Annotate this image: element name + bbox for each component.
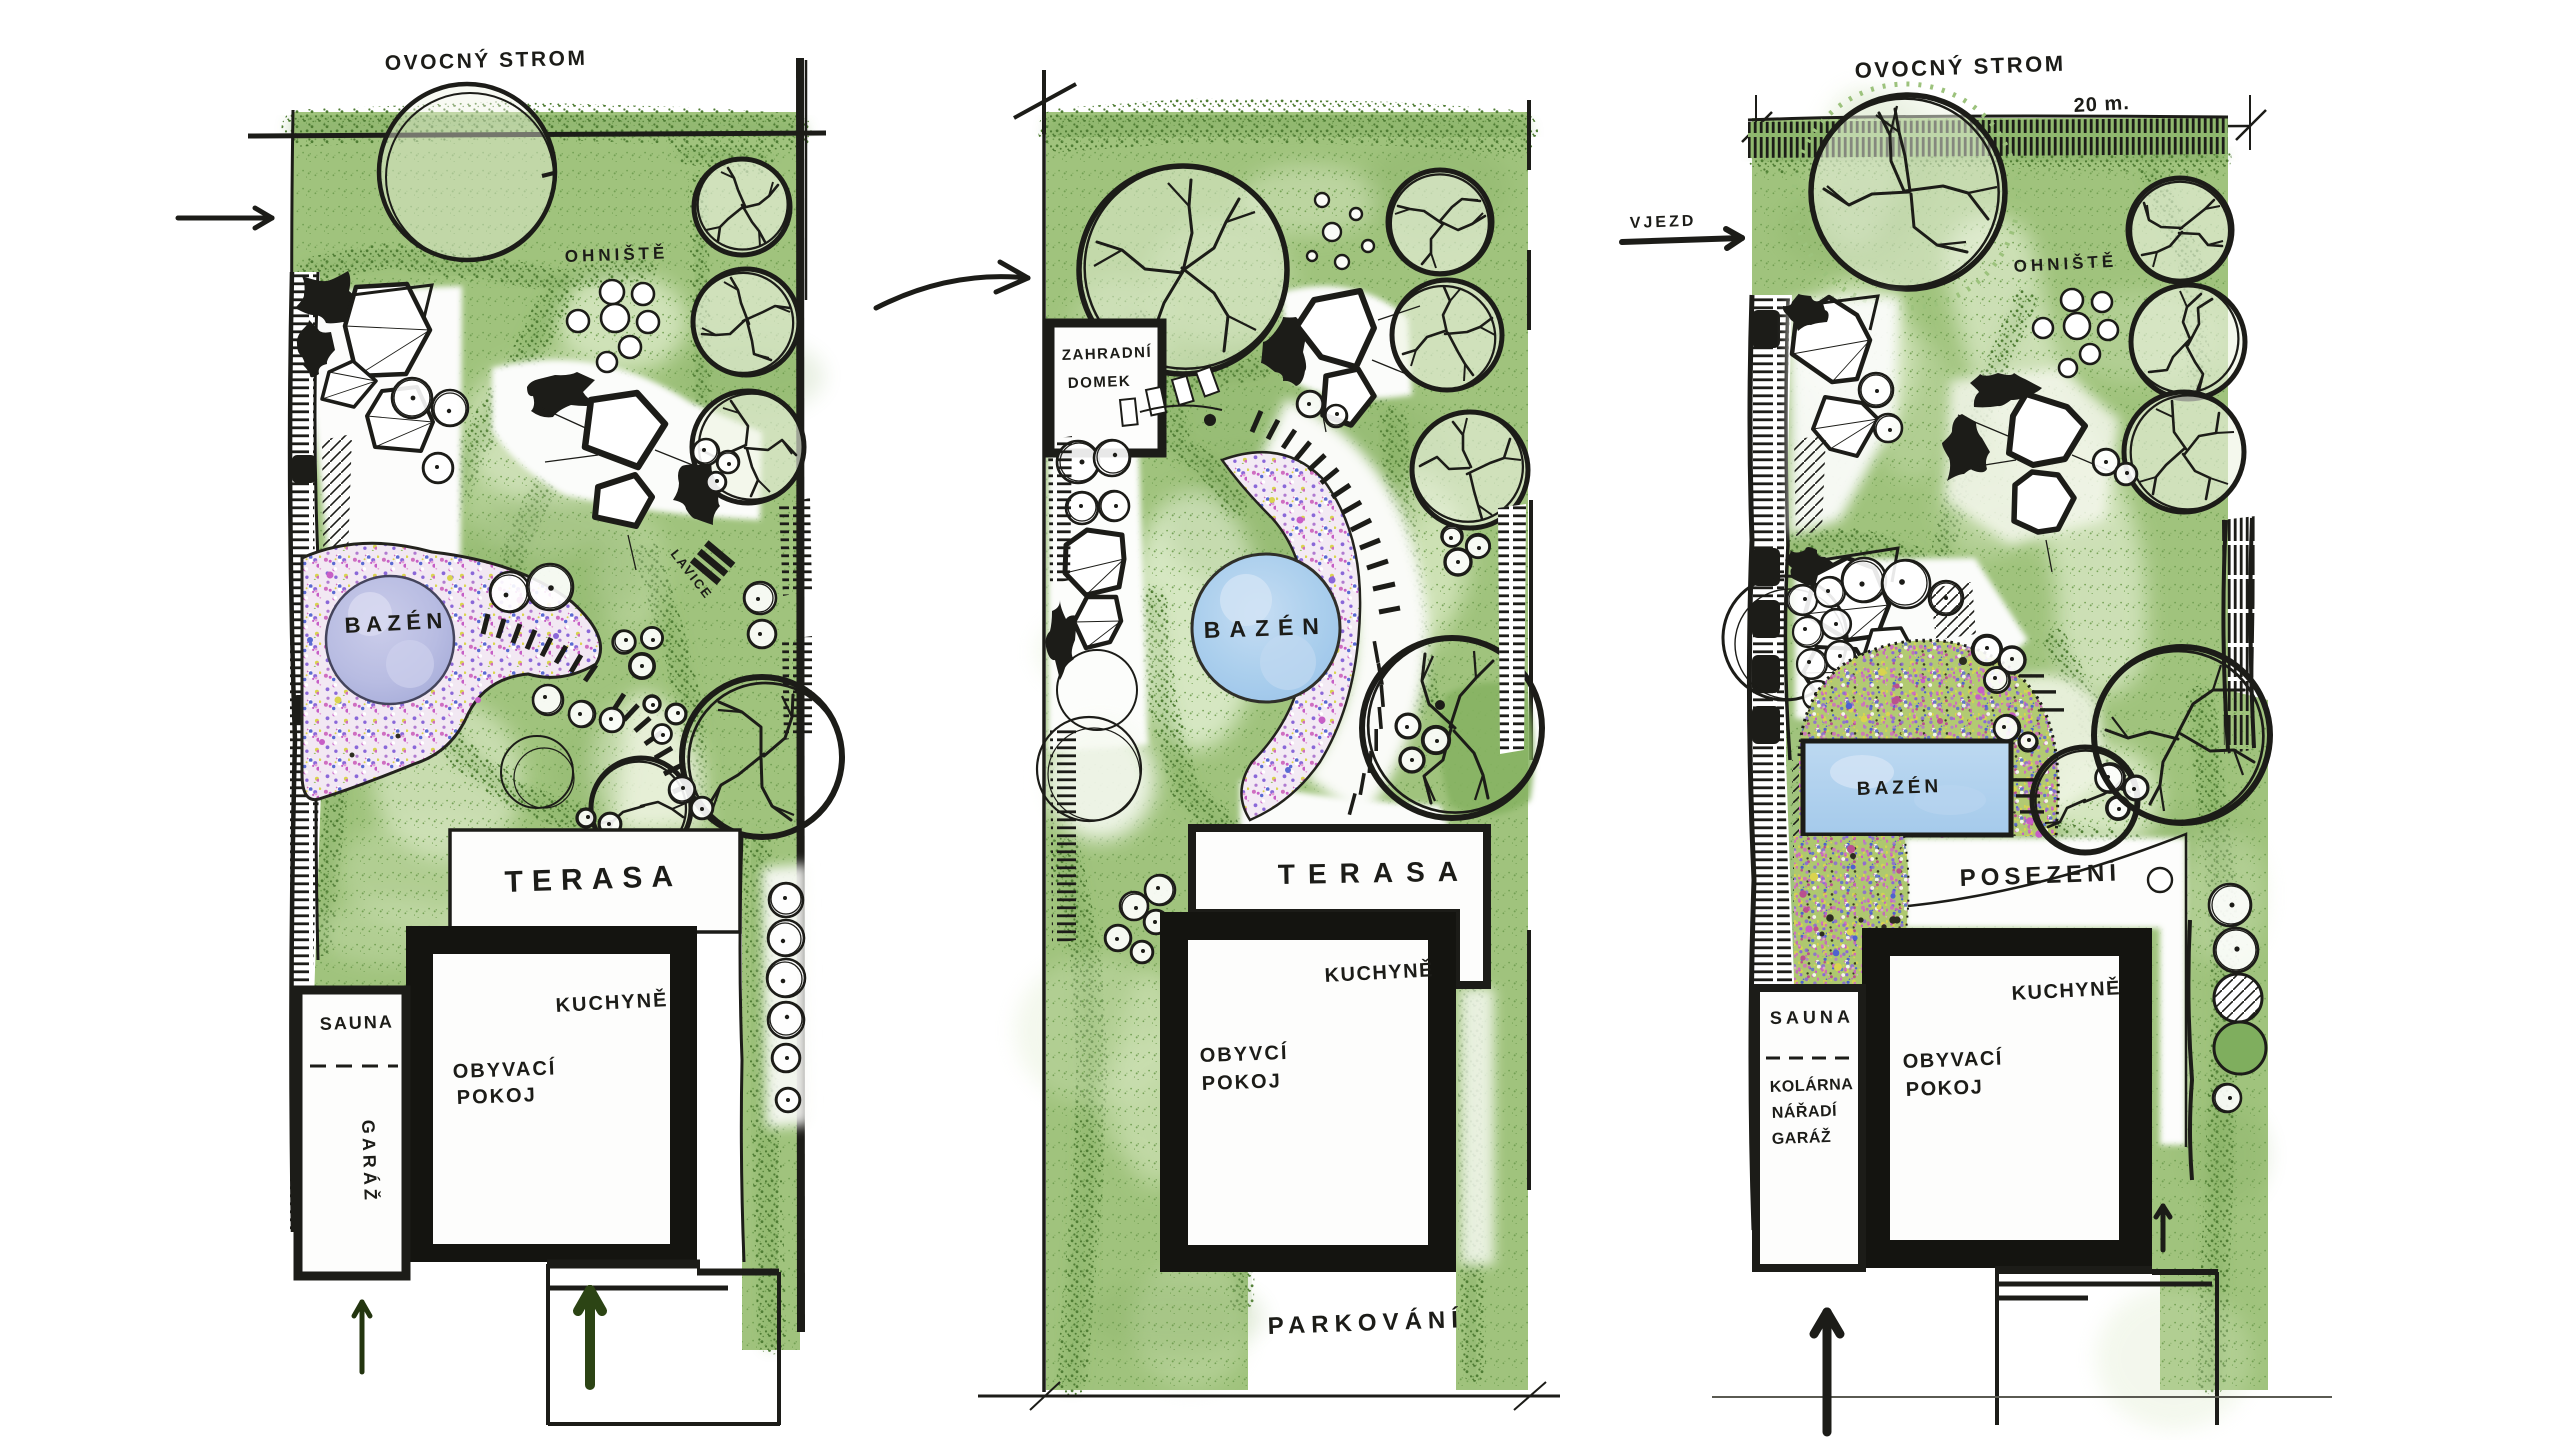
svg-text:POSEZENÍ: POSEZENÍ — [1959, 858, 2121, 892]
svg-text:SAUNA: SAUNA — [1770, 1007, 1854, 1028]
svg-text:OBYVCÍ: OBYVCÍ — [1199, 1041, 1288, 1067]
svg-text:SAUNA: SAUNA — [319, 1011, 394, 1034]
svg-text:20 m.: 20 m. — [2073, 92, 2130, 117]
svg-text:TERASA: TERASA — [504, 860, 682, 899]
svg-text:OVOCNÝ STROM: OVOCNÝ STROM — [1854, 51, 2066, 83]
svg-text:VJEZD: VJEZD — [1630, 213, 1697, 232]
svg-text:OHNIŠTĚ: OHNIŠTĚ — [564, 243, 668, 266]
svg-text:GARÁŽ: GARÁŽ — [1771, 1127, 1831, 1148]
svg-text:POKOJ: POKOJ — [1905, 1076, 1983, 1101]
svg-text:GARÁŽ: GARÁŽ — [358, 1119, 382, 1204]
svg-text:DOMEK: DOMEK — [1068, 373, 1132, 392]
svg-text:PARKOVÁNÍ: PARKOVÁNÍ — [1267, 1305, 1464, 1340]
svg-text:POKOJ: POKOJ — [1201, 1070, 1282, 1095]
svg-text:OVOCNÝ STROM: OVOCNÝ STROM — [385, 46, 588, 75]
svg-text:ZAHRADNÍ: ZAHRADNÍ — [1062, 344, 1153, 364]
svg-text:POKOJ: POKOJ — [456, 1084, 537, 1109]
svg-text:NÁŘADÍ: NÁŘADÍ — [1771, 1101, 1837, 1122]
svg-text:OBYVACÍ: OBYVACÍ — [1902, 1047, 2003, 1073]
svg-text:BAZÉN: BAZÉN — [1203, 612, 1328, 643]
svg-text:TERASA: TERASA — [1278, 856, 1472, 890]
svg-text:BAZÉN: BAZÉN — [1856, 775, 1942, 800]
svg-text:OBYVACÍ: OBYVACÍ — [452, 1056, 556, 1083]
